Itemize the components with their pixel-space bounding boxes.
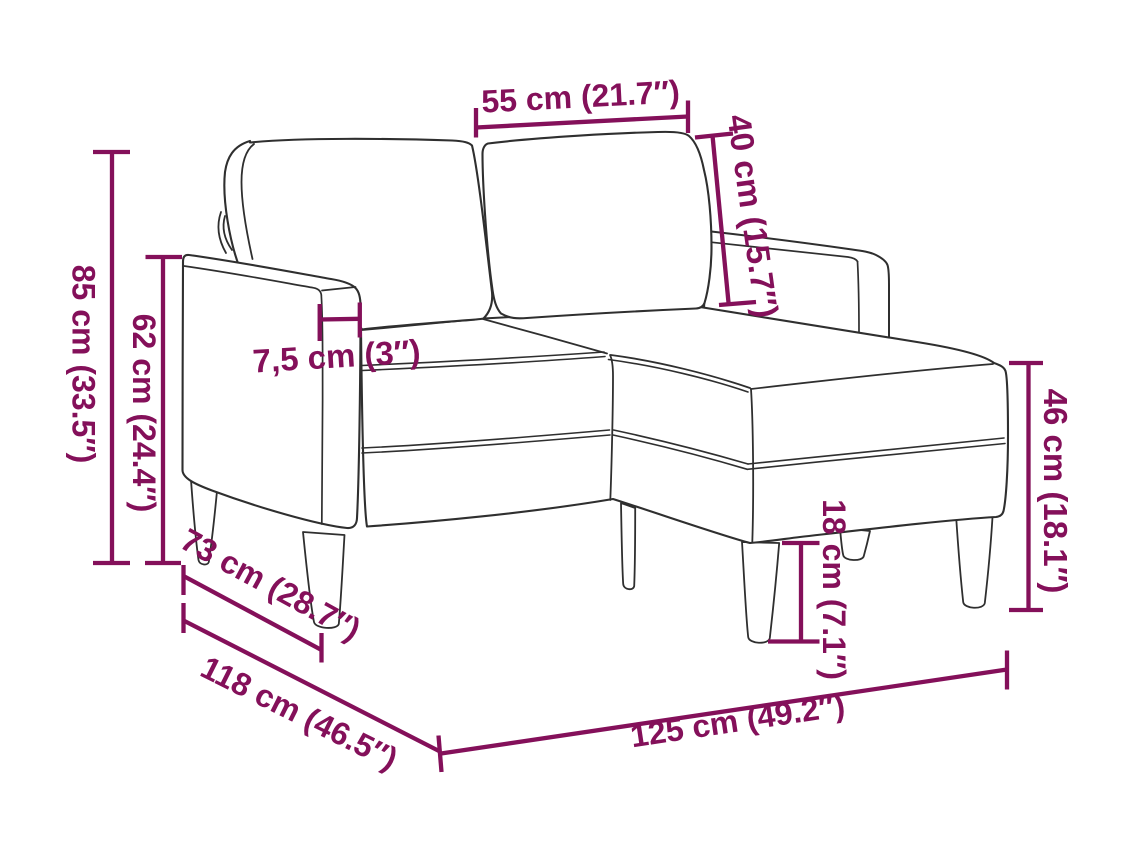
svg-text:62 cm (24.4″): 62 cm (24.4″) — [126, 314, 162, 513]
svg-text:46 cm (18.1″): 46 cm (18.1″) — [1037, 389, 1074, 594]
svg-text:85 cm (33.5″): 85 cm (33.5″) — [65, 265, 101, 464]
svg-text:18 cm (7.1″): 18 cm (7.1″) — [816, 499, 852, 680]
